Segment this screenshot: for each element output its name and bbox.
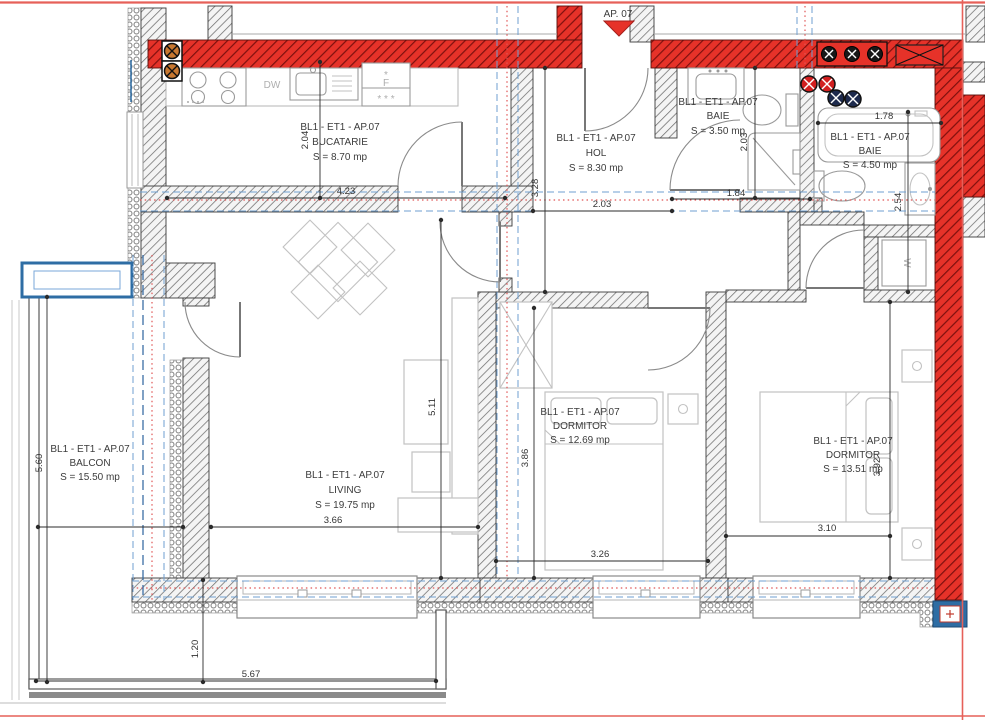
dishwasher-label: DW [264,80,281,91]
svg-text:2.03: 2.03 [593,199,612,210]
svg-text:3.86: 3.86 [520,449,531,468]
entrance-marker-label: AP. 07 [604,9,633,20]
balcony-edge [29,692,446,698]
svg-text:1.84: 1.84 [727,188,746,199]
gas-riser-icon [162,61,182,81]
bed-icon [545,392,663,570]
svg-text:3.28: 3.28 [530,179,541,198]
nightstand-icon [668,394,698,424]
svg-text:1.20: 1.20 [190,640,201,659]
kitchen-counter: DW * F * * * [166,63,458,106]
svg-text:LIVING: LIVING [329,485,362,496]
svg-text:BAIE: BAIE [859,146,882,157]
svg-text:S = 12.69 mp: S = 12.69 mp [550,435,610,446]
svg-text:BALCON: BALCON [69,458,110,469]
nightstand-icon [902,350,932,382]
svg-text:DORMITOR: DORMITOR [553,421,607,432]
svg-text:1.78: 1.78 [875,111,894,122]
gas-riser-icon [162,41,182,61]
svg-text:S = 3.50 mp: S = 3.50 mp [691,126,746,137]
svg-text:5.67: 5.67 [242,669,261,680]
svg-text:S = 4.50 mp: S = 4.50 mp [843,160,898,171]
wardrobe-icon [500,302,552,388]
electrical-box-icon [817,42,887,66]
svg-text:S = 8.70 mp: S = 8.70 mp [313,152,368,163]
floorplan-svg: DW * F * * * [0,0,985,720]
washing-machine-label: W [901,258,912,268]
floorplan-page: DW * F * * * [0,0,985,720]
svg-text:3.10: 3.10 [818,523,837,534]
svg-text:BL1 - ET1 - AP.07: BL1 - ET1 - AP.07 [556,133,636,144]
svg-text:BL1 - ET1 - AP.07: BL1 - ET1 - AP.07 [540,407,620,418]
svg-text:5.60: 5.60 [34,454,45,473]
fridge-freezer-stars: * * * [377,94,394,105]
svg-text:S = 13.51 mp: S = 13.51 mp [823,464,883,475]
svg-text:BAIE: BAIE [707,111,730,122]
svg-text:BL1 - ET1 - AP.07: BL1 - ET1 - AP.07 [305,470,385,481]
nightstand-icon [902,528,932,560]
svg-text:4.23: 4.23 [337,186,356,197]
svg-text:S = 15.50 mp: S = 15.50 mp [60,472,120,483]
svg-text:BUCATARIE: BUCATARIE [312,137,368,148]
svg-text:5.11: 5.11 [427,398,438,416]
fridge-icon: * F * * * [362,63,410,106]
svg-text:HOL: HOL [586,148,607,159]
vent-shaft-icon [896,45,943,65]
svg-text:2.04: 2.04 [300,131,311,150]
svg-text:3.66: 3.66 [324,515,343,526]
svg-text:DORMITOR: DORMITOR [826,450,880,461]
svg-text:BL1 - ET1 - AP.07: BL1 - ET1 - AP.07 [50,444,130,455]
svg-text:2.54: 2.54 [893,193,904,212]
washing-machine-icon: W [882,240,926,286]
svg-text:S = 19.75 mp: S = 19.75 mp [315,500,375,511]
svg-text:S = 8.30 mp: S = 8.30 mp [569,163,624,174]
fridge-label: F [383,78,389,89]
svg-text:BL1 - ET1 - AP.07: BL1 - ET1 - AP.07 [830,132,910,143]
svg-text:BL1 - ET1 - AP.07: BL1 - ET1 - AP.07 [678,97,758,108]
balcony-window-blue [22,263,132,297]
svg-text:3.26: 3.26 [591,549,610,560]
svg-text:BL1 - ET1 - AP.07: BL1 - ET1 - AP.07 [300,122,380,133]
svg-text:BL1 - ET1 - AP.07: BL1 - ET1 - AP.07 [813,436,893,447]
